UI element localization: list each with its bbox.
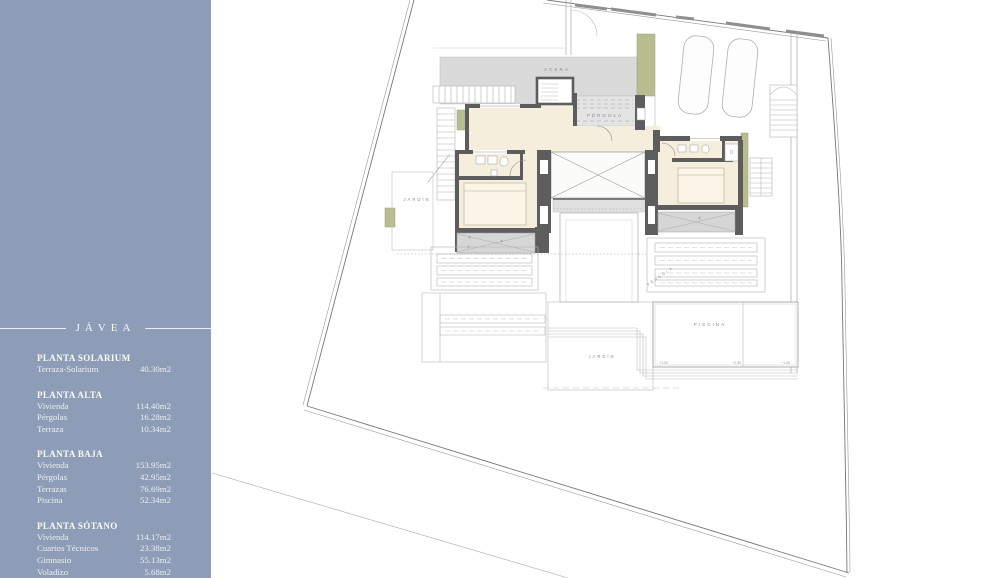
car-icon: [677, 35, 759, 119]
section-heading: PLANTA SÓTANO: [37, 520, 171, 532]
area-row: Cuartos Técnicos 23.38m2: [37, 543, 171, 555]
area-schedule: PLANTA SOLARIUM Terraza-Solarium 40.30m2…: [37, 352, 171, 578]
area-value: 5.68m2: [144, 567, 171, 578]
area-value: 10.34m2: [140, 424, 171, 436]
section-heading: PLANTA BAJA: [37, 448, 171, 460]
area-value: 76.69m2: [140, 484, 171, 496]
acera-label: ACERA: [544, 67, 570, 72]
area-label: Gimnasio: [37, 555, 71, 567]
pergola-area: [573, 96, 636, 126]
area-label: Voladizo: [37, 567, 68, 578]
section-planta-sotano: PLANTA SÓTANO Vivienda 114.17m2 Cuartos …: [37, 520, 171, 578]
page: ACERA PÉRGOLA JARDÍN JARDÍN PISCINA PÉRG…: [0, 0, 1000, 578]
title-rule-left: [0, 328, 66, 329]
level-mark: +1.50: [781, 361, 790, 365]
exterior-stair: [750, 85, 797, 196]
title-rule-right: [145, 328, 211, 329]
area-row: Piscina 52.34m2: [37, 495, 171, 507]
project-title: JÁVEA: [66, 322, 146, 334]
area-value: 114.40m2: [136, 401, 171, 413]
area-row: Terrazas 76.69m2: [37, 484, 171, 496]
jardin-bottom-label: JARDÍN: [588, 354, 615, 359]
area-value: 42.95m2: [140, 472, 171, 484]
area-label: Terrazas: [37, 484, 67, 496]
area-value: 55.13m2: [140, 555, 171, 567]
piscina-label: PISCINA: [694, 322, 726, 327]
section-planta-alta: PLANTA ALTA Vivienda 114.40m2 Pérgolas 1…: [37, 389, 171, 436]
area-label: Pérgolas: [37, 472, 67, 484]
area-value: 153.95m2: [136, 460, 171, 472]
gate-door-arc: [571, 10, 597, 36]
lower-void-outline: [560, 213, 638, 302]
area-value: 52.34m2: [140, 495, 171, 507]
stair-block: [537, 78, 573, 104]
section-planta-solarium: PLANTA SOLARIUM Terraza-Solarium 40.30m2: [37, 352, 171, 376]
area-row: Voladizo 5.68m2: [37, 567, 171, 578]
sidebar: JÁVEA PLANTA SOLARIUM Terraza-Solarium 4…: [0, 0, 211, 578]
area-label: Terraza: [37, 424, 63, 436]
area-value: 23.38m2: [140, 543, 171, 555]
jardin-left-label: JARDÍN: [403, 197, 430, 202]
pergola-side-label: PÉRGOLA: [646, 265, 675, 287]
area-label: Cuartos Técnicos: [37, 543, 98, 555]
project-title-row: JÁVEA: [0, 322, 211, 334]
area-label: Vivienda: [37, 460, 69, 472]
bed-left: [464, 183, 526, 225]
area-row: Vivienda 153.95m2: [37, 460, 171, 472]
area-label: Vivienda: [37, 532, 69, 544]
section-heading: PLANTA SOLARIUM: [37, 352, 171, 364]
void-cross: [551, 152, 645, 212]
area-row: Pérgolas 42.95m2: [37, 472, 171, 484]
area-value: 114.17m2: [136, 532, 171, 544]
pergola-label: PÉRGOLA: [587, 112, 623, 118]
area-row: Pérgolas 16.28m2: [37, 412, 171, 424]
bed-right: [678, 168, 724, 203]
area-row: Terraza-Solarium 40.30m2: [37, 364, 171, 376]
section-heading: PLANTA ALTA: [37, 389, 171, 401]
area-row: Gimnasio 55.13m2: [37, 555, 171, 567]
area-row: Vivienda 114.17m2: [37, 532, 171, 544]
area-label: Terraza-Solarium: [37, 364, 98, 376]
level-mark: +1.50: [732, 361, 741, 365]
area-value: 16.28m2: [140, 412, 171, 424]
section-planta-baja: PLANTA BAJA Vivienda 153.95m2 Pérgolas 4…: [37, 448, 171, 506]
area-label: Piscina: [37, 495, 62, 507]
pool: [653, 302, 798, 367]
area-row: Vivienda 114.40m2: [37, 401, 171, 413]
level-mark: +1.50: [659, 361, 668, 365]
area-label: Pérgolas: [37, 412, 67, 424]
area-label: Vivienda: [37, 401, 69, 413]
area-row: Terraza 10.34m2: [37, 424, 171, 436]
area-value: 40.30m2: [140, 364, 171, 376]
